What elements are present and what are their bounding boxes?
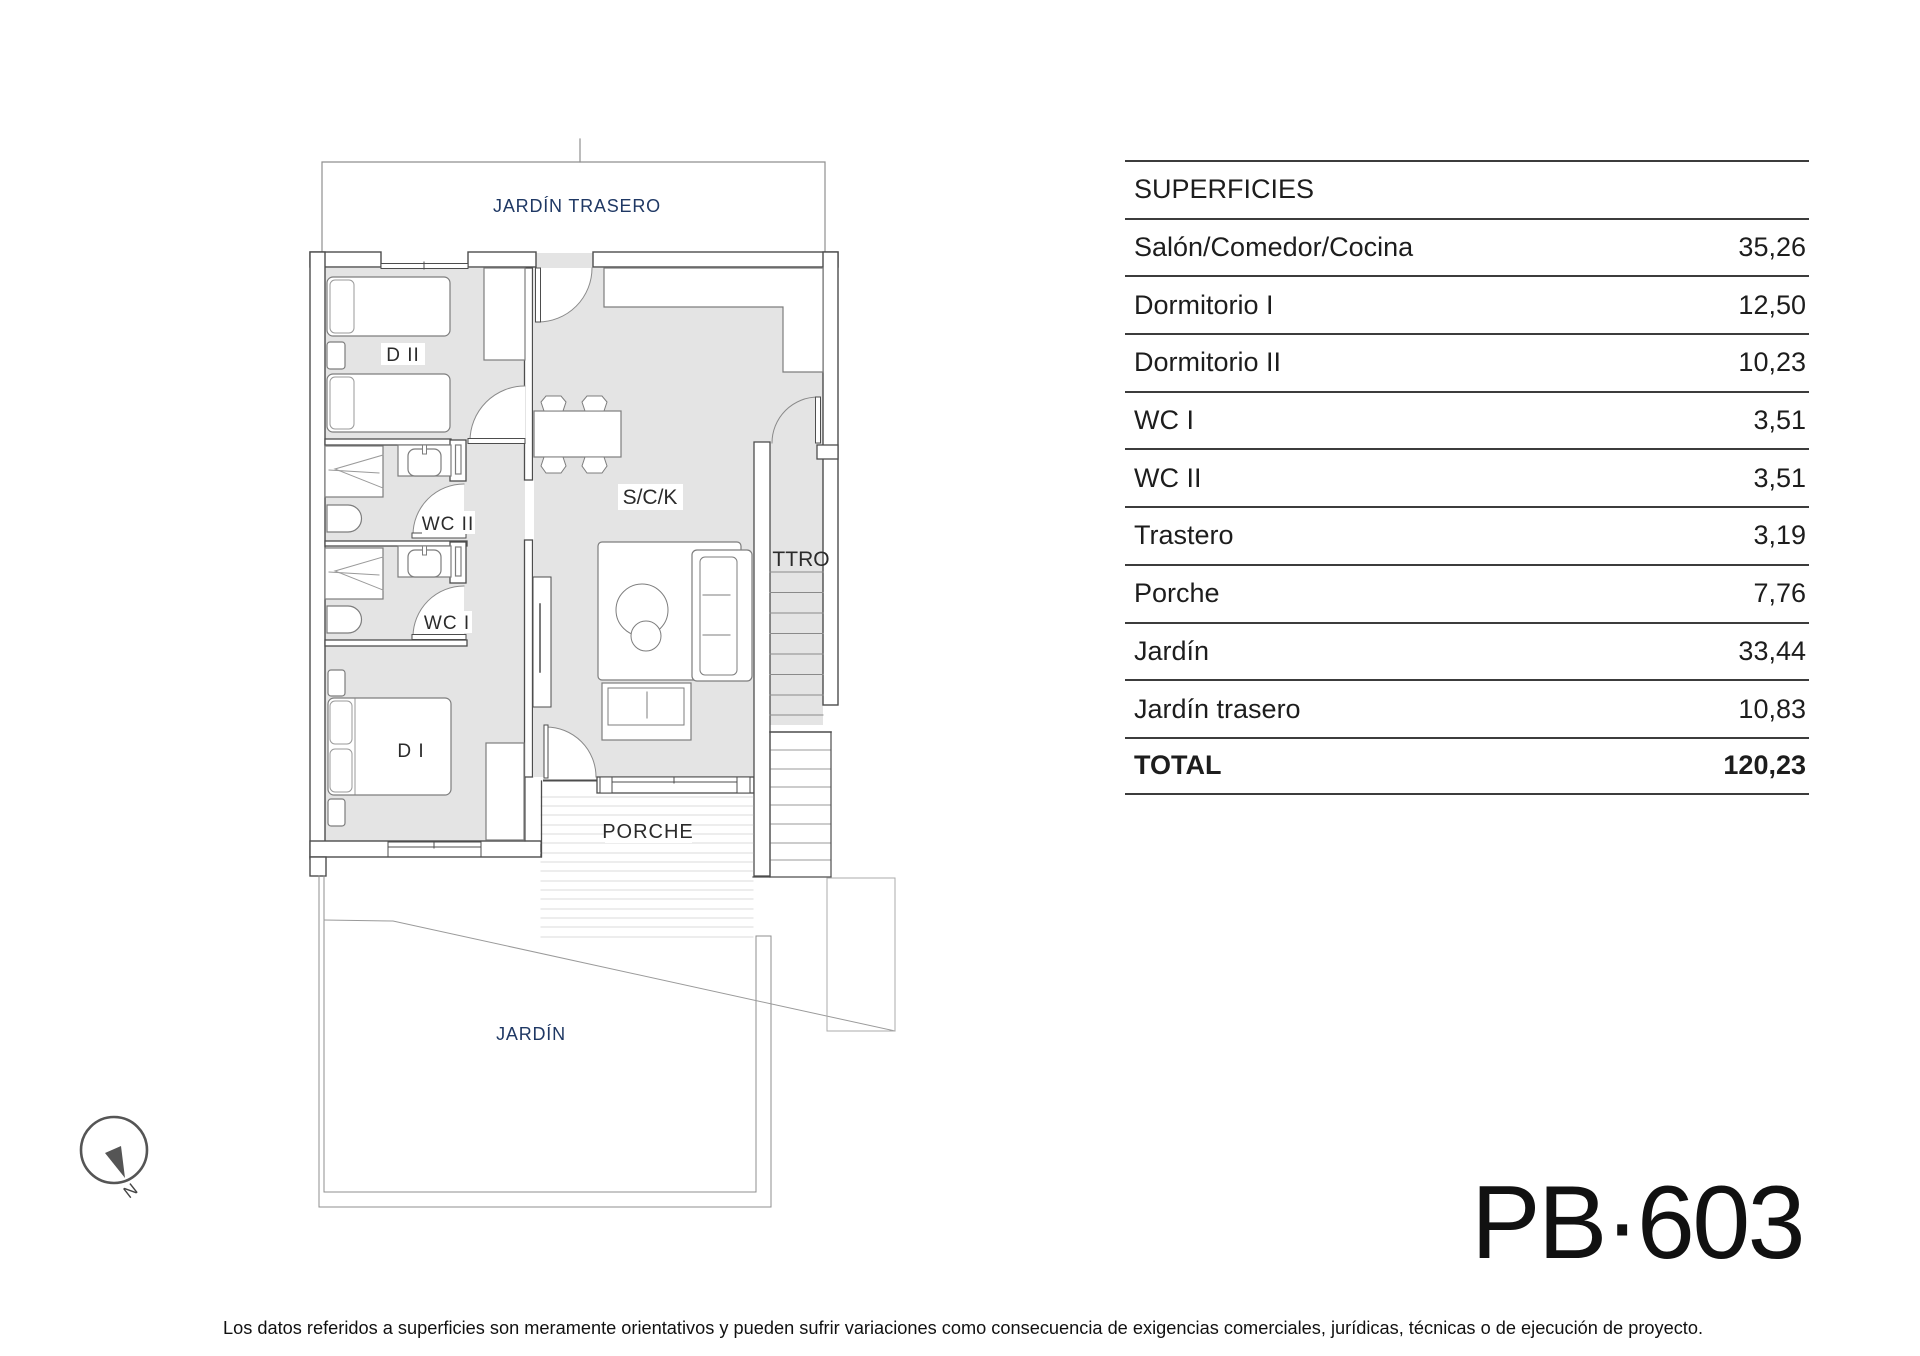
svg-text:PORCHE: PORCHE (602, 821, 694, 843)
svg-text:JARDÍN TRASERO: JARDÍN TRASERO (493, 196, 661, 216)
svg-text:D I: D I (397, 741, 424, 762)
svg-text:D II: D II (386, 345, 420, 366)
svg-text:S/C/K: S/C/K (623, 486, 678, 509)
svg-text:WC I: WC I (424, 613, 470, 634)
svg-text:TTRO: TTRO (772, 548, 829, 571)
svg-text:WC II: WC II (422, 514, 475, 535)
svg-text:JARDÍN: JARDÍN (496, 1024, 566, 1044)
